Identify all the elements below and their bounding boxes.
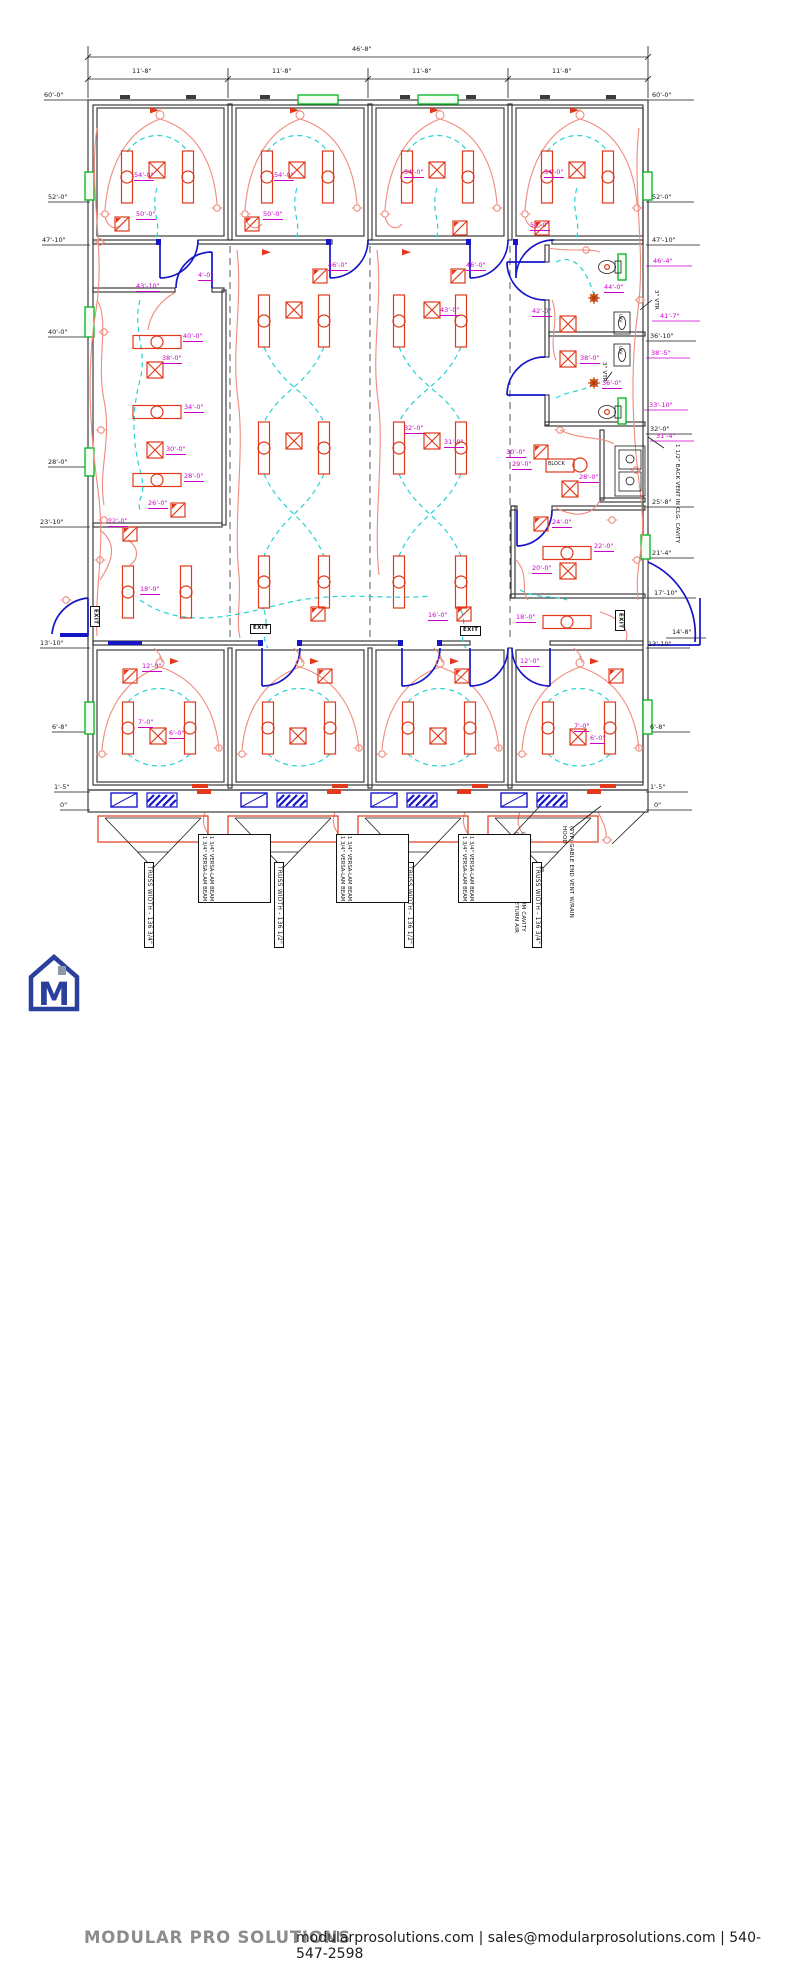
- plan-label: 6'-0": [590, 735, 605, 744]
- dim-bay: 11'-8": [132, 68, 152, 75]
- plan-label: 50'-0": [136, 211, 156, 220]
- beam-label: 1 3/4" VERSA-LAM BEAM1 3/4" VERSA-LAM BE…: [458, 834, 531, 903]
- beam-label: 1 3/4" VERSA-LAM BEAM1 3/4" VERSA-LAM BE…: [336, 834, 409, 903]
- dim-bay: 11'-8": [272, 68, 292, 75]
- plan-label: 12'-0": [520, 658, 540, 667]
- contact-info: modularprosolutions.com | sales@modularp…: [296, 1930, 791, 1962]
- dim-right-plumbing: 31'-4": [656, 433, 676, 440]
- dim-left: 6'-8": [52, 724, 67, 731]
- dim-right: 47'-10": [652, 237, 676, 244]
- block-label: BLOCK: [548, 462, 565, 467]
- dim-right: 36'-10": [650, 333, 674, 340]
- plan-label: 42'-0": [532, 308, 552, 317]
- plan-label: 22'-0": [108, 518, 128, 527]
- truss-width-label: TRUSS WIDTH - 136 3/4": [144, 862, 154, 948]
- dimension-lines: [40, 46, 706, 810]
- walls: [88, 95, 648, 790]
- plan-label: 20'-0": [532, 565, 552, 574]
- dim-right-plumbing: 33'-10": [649, 402, 673, 409]
- plan-label: 28'-0": [184, 473, 204, 482]
- dim-left: 28'-0": [48, 459, 68, 466]
- plan-label: 50'-0": [263, 211, 283, 220]
- truss-width-label: TRUSS WIDTH - 136 3/4": [532, 862, 542, 948]
- plan-label: 34'-0": [184, 404, 204, 413]
- dim-left: 0": [60, 802, 67, 809]
- dim-left: 52'-0": [48, 194, 68, 201]
- lav-label: LAV: [617, 314, 622, 322]
- dim-right: 52'-0": [652, 194, 672, 201]
- dim-left: 60'-0": [44, 92, 64, 99]
- plan-label: 54'-0": [404, 169, 424, 178]
- dim-overall-width: 46'-8": [352, 46, 372, 53]
- exit-sign: EXIT: [90, 606, 100, 627]
- dim-right-plumbing: 41'-7": [660, 313, 680, 320]
- beam-label-line: 1 3/4" VERSA-LAM BEAM: [207, 836, 214, 901]
- exit-sign: EXIT: [460, 626, 481, 636]
- plan-label: 24'-0": [552, 519, 572, 528]
- plan-label: 26'-0": [148, 500, 168, 509]
- logo-letter: M: [38, 975, 70, 1012]
- dim-right-plumbing: 38'-5": [651, 350, 671, 357]
- plan-label: 28'-0": [579, 474, 599, 483]
- beam-label: 1 3/4" VERSA-LAM BEAM1 3/4" VERSA-LAM BE…: [198, 834, 271, 903]
- door-icons: [52, 239, 700, 686]
- exhaust-fan-icon: [115, 217, 129, 231]
- dim-left: 40'-0": [48, 329, 68, 336]
- plan-label: 30'-0": [166, 446, 186, 455]
- plan-label: 32'-0": [404, 425, 424, 434]
- dim-right: 6'-8": [650, 724, 665, 731]
- dim-left: 23'-10": [40, 519, 64, 526]
- dim-right: 14'-8": [672, 629, 692, 636]
- vtr-note: 3" VTR: [600, 362, 607, 382]
- beam-label-line: 1 3/4" VERSA-LAM BEAM: [338, 836, 345, 901]
- plan-label: 46'-0": [328, 262, 348, 271]
- plan-label: 16'-0": [428, 612, 448, 621]
- floor-plan-sheet: 46'-8" 11'-8" 11'-8" 11'-8" 11'-8" 60'-0…: [0, 0, 791, 1024]
- gable-vent-note: (TYP) GABLE END VENT W/RAIN HOOD: [556, 826, 574, 926]
- modular-pro-logo-icon: M: [28, 954, 80, 1012]
- exit-sign: EXIT: [250, 624, 271, 634]
- light-fixture-icon: [121, 151, 133, 203]
- plan-label: 7'-0": [574, 723, 589, 732]
- dim-left: 1'-5": [54, 784, 69, 791]
- dim-right: 60'-0": [652, 92, 672, 99]
- plan-label: 54'-0": [274, 172, 294, 181]
- plan-label: 22'-0": [594, 543, 614, 552]
- dim-bay: 11'-8": [412, 68, 432, 75]
- exit-sign: EXIT: [615, 610, 625, 631]
- fan-light-icon: [588, 292, 600, 304]
- plan-label: 29'-0": [512, 461, 532, 470]
- dim-right-plumbing: 46'-4": [653, 258, 673, 265]
- plan-label: 43'-0": [440, 307, 460, 316]
- lav-label: LAV: [617, 346, 622, 354]
- dim-right: 0": [654, 802, 661, 809]
- beam-label-line: 1 3/4" VERSA-LAM BEAM: [200, 836, 207, 901]
- truss-width-label: TRUSS WIDTH - 136 1/2": [274, 862, 284, 948]
- dim-left: 47'-10": [42, 237, 66, 244]
- plan-label: 12'-0": [142, 663, 162, 672]
- dim-right: 21'-4": [652, 550, 672, 557]
- dim-bay: 11'-8": [552, 68, 572, 75]
- dim-right: 1'-5": [650, 784, 665, 791]
- beam-label-line: 1 3/4" VERSA-LAM BEAM: [345, 836, 352, 901]
- plan-label: 43'-10": [136, 283, 160, 292]
- plan-label: 50'-0": [530, 222, 550, 231]
- crawl-vent-icon: [111, 793, 137, 807]
- dim-left: 13'-10": [40, 640, 64, 647]
- beam-label-line: 1 3/4" VERSA-LAM BEAM: [460, 836, 467, 901]
- dim-right: 17'-10": [654, 590, 678, 597]
- back-vent-note: 1 1/2" BACK VENT IN CLG. CAVITY: [662, 444, 680, 546]
- plan-label: 31'-0": [444, 439, 464, 448]
- water-heater-icon: [615, 446, 645, 496]
- vtr-note: 3" VTR: [652, 290, 659, 310]
- plan-label: 40'-0": [183, 333, 203, 342]
- plan-label: 54'-0": [544, 169, 564, 178]
- plan-label: 54'-0": [134, 172, 154, 181]
- plan-label: 18'-0": [140, 586, 160, 595]
- plan-label: 7'-0": [138, 719, 153, 728]
- plan-label: 46'-0": [466, 262, 486, 271]
- plan-label: 44'-0": [604, 284, 624, 293]
- plan-label: 38'-0": [580, 355, 600, 364]
- plan-label: 30'-0": [506, 449, 526, 458]
- step-icon: [147, 793, 177, 807]
- beam-label-line: 1 3/4" VERSA-LAM BEAM: [467, 836, 474, 901]
- plan-label: 18'-0": [516, 614, 536, 623]
- truss-icons: [98, 300, 664, 872]
- footer: M MODULAR PRO SOLUTIONS modularprosoluti…: [0, 948, 791, 1024]
- plan-label: 4'-0": [198, 272, 213, 281]
- plan-label: 38'-0": [162, 355, 182, 364]
- plan-label: 6'-0": [169, 730, 184, 739]
- dim-right: 13'-10": [648, 641, 672, 648]
